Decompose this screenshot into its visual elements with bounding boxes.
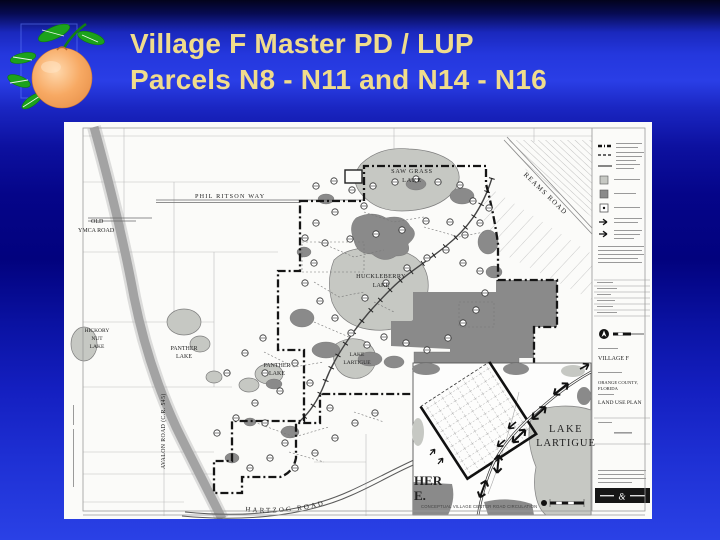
- label-panther-b-1: PANTHER: [263, 363, 290, 369]
- inset-lake-lartigue-shape: [529, 406, 591, 515]
- legend-titleblock: VILLAGE F ORANGE COUNTY, FLORIDA LAND US…: [592, 128, 650, 511]
- label-cut-fragment-2: E.: [414, 488, 426, 503]
- label-panther-a-1: PANTHER: [170, 346, 197, 352]
- orange-logo: [2, 16, 112, 111]
- label-old-ymca-2: YMCA ROAD: [78, 228, 115, 234]
- wetland-square: [600, 190, 608, 198]
- label-hickory-3: LAKE: [90, 344, 105, 350]
- revision-table: [594, 280, 650, 316]
- sheet-title: LAND USE PLAN: [598, 400, 642, 406]
- orange-body: [32, 48, 92, 108]
- excluded-parcel: [345, 170, 362, 183]
- label-huckleberry-1: HUCKLEBERRY: [356, 273, 406, 280]
- label-huckleberry-2: LAKE: [373, 282, 390, 289]
- label-sawgrass-2: LAKE: [402, 177, 422, 184]
- plot-stamp: [73, 405, 74, 487]
- map-canvas: PHIL RITSON WAY OLD YMCA ROAD HICKORY NU…: [64, 122, 652, 519]
- legend: [598, 143, 644, 263]
- label-lartigue-small-1: LAKE: [350, 352, 365, 358]
- flow-arrow: [599, 219, 607, 225]
- label-panther-a-2: LAKE: [176, 354, 192, 360]
- label-sawgrass-1: SAW GRASS: [391, 168, 433, 175]
- label-phil-ritson-way: PHIL RITSON WAY: [195, 193, 265, 200]
- label-panther-b-2: LAKE: [269, 371, 285, 377]
- firm-ampersand: &: [618, 492, 625, 502]
- label-cut-fragment-1: HER: [414, 473, 443, 488]
- firm-address: [598, 470, 646, 483]
- land-use-plan-map: PHIL RITSON WAY OLD YMCA ROAD HICKORY NU…: [64, 122, 652, 519]
- label-old-ymca-1: OLD: [91, 219, 104, 225]
- orange-fruit-clipart: [2, 16, 112, 111]
- label-lartigue-inset-1: LAKE: [549, 424, 583, 435]
- label-avalon-road: AVALON ROAD (C.R. 545): [160, 393, 167, 469]
- label-hickory-2: NUT: [91, 336, 103, 342]
- project-name: VILLAGE F: [598, 356, 629, 362]
- title-line-1: Village F Master PD / LUP: [130, 26, 690, 62]
- slide-title: Village F Master PD / LUP Parcels N8 - N…: [130, 26, 690, 98]
- village-center-inset: LAKE LARTIGUE HER E. CONCEPTUAL VILLAGE …: [412, 361, 596, 515]
- label-hickory-1: HICKORY: [85, 328, 110, 334]
- label-lartigue-small-2: LARTIGUE: [343, 360, 371, 366]
- slide: { "slide": { "title_line1": "Village F M…: [0, 0, 720, 540]
- highlight: [41, 61, 61, 73]
- county-line-2: FLORIDA: [598, 386, 619, 391]
- firm-logo: &: [595, 488, 650, 503]
- label-lartigue-inset-2: LARTIGUE: [536, 438, 596, 449]
- access-arrow: [599, 231, 607, 237]
- label-hartzog-road: HARTZOG ROAD: [245, 499, 326, 515]
- water-body-square: [600, 176, 608, 184]
- north-arrow-scale: [599, 329, 644, 339]
- title-line-2: Parcels N8 - N11 and N14 - N16: [130, 62, 690, 98]
- inset-caption: CONCEPTUAL VILLAGE CENTER ROAD CIRCULATI…: [421, 504, 537, 509]
- creek-corridor: [94, 127, 222, 519]
